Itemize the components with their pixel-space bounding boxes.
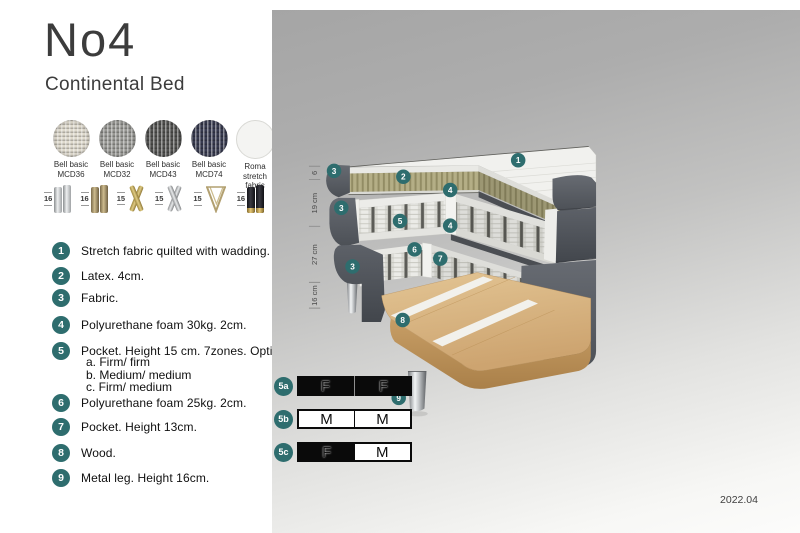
leg-height-measure: 16	[237, 190, 245, 208]
fabric-swatch-label: Bell basic MCD32	[100, 160, 134, 179]
fabric-name: Bell basic	[192, 160, 226, 170]
firmness-option-5a: 5a F F	[274, 376, 412, 396]
leg-bar	[91, 187, 99, 213]
leg-option-cross-silver: 15	[155, 185, 184, 212]
product-title: No4	[44, 12, 136, 67]
feature-number-badge: 9	[52, 469, 70, 487]
callout-3-middle: 3	[334, 201, 349, 216]
measure-tick	[117, 192, 125, 193]
fabric-swatch-label: Bell basic MCD74	[192, 160, 226, 179]
callout-label: 8	[400, 316, 405, 325]
leg-height-value: 15	[155, 195, 163, 203]
callout-5: 5	[393, 214, 408, 229]
callout-2: 2	[396, 170, 411, 185]
fabric-name: Bell basic	[54, 160, 88, 170]
fabric-code: MCD32	[100, 170, 134, 180]
cylinder-black-gold-leg-icon	[247, 185, 264, 213]
fabric-swatch-row: Bell basic MCD36 Bell basic MCD32 Bell b…	[50, 120, 276, 191]
firmness-cell: M	[354, 411, 410, 427]
fabric-swatch-icon	[191, 120, 228, 157]
firmness-badge: 5a	[274, 377, 293, 396]
feature-number-badge: 8	[52, 444, 70, 462]
feature-item-7: 7 Pocket. Height 13cm.	[52, 418, 197, 436]
diagram-panel: 6 19 cm 27 cm 16 cm	[272, 10, 800, 533]
callout-4-upper: 4	[443, 183, 458, 198]
measure-tick	[81, 205, 89, 206]
measure-tick	[44, 192, 52, 193]
callout-label: 1	[516, 156, 521, 165]
page: No4 Continental Bed Bell basic MCD36 Bel…	[0, 0, 800, 533]
feature-text: Latex. 4cm.	[81, 267, 144, 283]
leg-options-row: 16 16 15	[44, 185, 264, 213]
dimension-label: 16 cm	[310, 285, 319, 306]
hairpin-leg-icon	[204, 185, 228, 213]
feature-number-badge: 2	[52, 267, 70, 285]
fabric-swatch: Bell basic MCD43	[142, 120, 184, 191]
leg-option-cylinder-bronze: 16	[80, 185, 107, 213]
measure-tick	[81, 192, 89, 193]
measure-tick	[237, 205, 245, 206]
firmness-value: F	[322, 445, 331, 460]
leg-option-cross-gold: 15	[117, 185, 146, 212]
leg-bar	[100, 185, 108, 213]
firmness-option-5c: 5c F M	[274, 442, 412, 462]
callout-label: 2	[401, 173, 406, 182]
dimension-label: 27 cm	[310, 244, 319, 265]
measure-tick	[194, 192, 202, 193]
firmness-badge: 5b	[274, 410, 293, 429]
firmness-box: F M	[297, 442, 412, 462]
callout-label: 6	[412, 245, 417, 254]
leg-height-measure: 16	[44, 190, 52, 208]
fabric-swatch-label: Bell basic MCD43	[146, 160, 180, 179]
firmness-value: M	[320, 412, 333, 427]
callout-label: 4	[448, 186, 453, 195]
measure-tick	[155, 192, 163, 193]
callout-label: 3	[332, 167, 337, 176]
cross-gold-leg-icon	[127, 185, 146, 212]
feature-item-1: 1 Stretch fabric quilted with wadding.	[52, 242, 270, 260]
feature-text: Stretch fabric quilted with wadding.	[81, 242, 270, 258]
firmness-box: F F	[297, 376, 412, 396]
fabric-swatch-icon	[53, 120, 90, 157]
feature-item-8: 8 Wood.	[52, 444, 116, 462]
leg-bar	[54, 187, 62, 213]
fabric-swatch: Bell basic MCD32	[96, 120, 138, 191]
measure-tick	[155, 204, 163, 205]
leg-option-cylinder-silver: 16	[44, 185, 71, 213]
feature-number-badge: 7	[52, 418, 70, 436]
feature-item-4: 4 Polyurethane foam 30kg. 2cm.	[52, 316, 247, 334]
feature-item-9: 9 Metal leg. Height 16cm.	[52, 469, 209, 487]
leg-height-value: 16	[237, 195, 245, 203]
fabric-code: MCD74	[192, 170, 226, 180]
version-stamp: 2022.04	[690, 494, 758, 506]
fabric-swatch-icon	[236, 120, 275, 159]
firmness-value: F	[379, 379, 388, 394]
fabric-name: Bell basic	[146, 160, 180, 170]
measure-tick	[194, 205, 202, 206]
leg-height-value: 15	[193, 195, 201, 203]
dimension-label: 19 cm	[310, 193, 319, 214]
feature-text: Polyurethane foam 30kg. 2cm.	[81, 316, 247, 332]
measure-tick	[44, 205, 52, 206]
measure-tick	[237, 192, 245, 193]
leg-bar	[247, 187, 255, 213]
leg-bar	[256, 185, 264, 213]
callout-8: 8	[395, 313, 410, 328]
feature-text: Polyurethane foam 25kg. 2cm.	[81, 394, 247, 410]
callout-label: 4	[448, 222, 453, 231]
leg-height-measure: 15	[193, 190, 201, 208]
fabric-swatch-icon	[99, 120, 136, 157]
dimension-label: 6	[310, 171, 319, 175]
fabric-name: Bell basic	[100, 160, 134, 170]
feature-item-3: 3 Fabric.	[52, 289, 118, 307]
feature-number-badge: 1	[52, 242, 70, 260]
fabric-code: MCD36	[54, 170, 88, 180]
feature-text: Metal leg. Height 16cm.	[81, 469, 209, 485]
callout-7: 7	[433, 251, 448, 266]
callout-label: 5	[398, 217, 403, 226]
fabric-swatch: Roma stretch fabric	[234, 120, 276, 191]
feature-number-badge: 4	[52, 316, 70, 334]
leg-height-measure: 15	[155, 190, 163, 208]
feature-5-option-c: c. Firm/ medium	[86, 380, 172, 394]
measure-tick	[117, 204, 125, 205]
firmness-badge: 5c	[274, 443, 293, 462]
leg-bar	[63, 185, 71, 213]
latex-layer-left	[349, 172, 479, 192]
firmness-cell: F	[299, 444, 355, 460]
callout-label: 7	[438, 255, 443, 264]
cylinder-silver-leg-icon	[54, 185, 71, 213]
callout-1: 1	[511, 153, 526, 168]
feature-number-badge: 3	[52, 289, 70, 307]
dimension-ruler: 6 19 cm 27 cm 16 cm	[309, 166, 320, 308]
feature-number-badge: 6	[52, 394, 70, 412]
callout-3-bottom: 3	[345, 259, 360, 274]
leg-option-hairpin: 15	[193, 185, 227, 213]
fabric-swatch-icon	[145, 120, 182, 157]
firmness-box: M M	[297, 409, 412, 429]
feature-text: Pocket. Height 13cm.	[81, 418, 197, 434]
feature-number-badge: 5	[52, 342, 70, 360]
cross-silver-leg-icon	[165, 185, 184, 212]
cylinder-bronze-leg-icon	[91, 185, 108, 213]
firmness-value: M	[376, 445, 389, 460]
callout-label: 3	[350, 263, 355, 272]
firmness-value: M	[376, 412, 389, 427]
leg-option-cylinder-black-gold: 16	[237, 185, 264, 213]
feature-text: Fabric.	[81, 289, 118, 305]
fabric-code: MCD43	[146, 170, 180, 180]
feature-item-2: 2 Latex. 4cm.	[52, 267, 144, 285]
firmness-cell: F	[297, 376, 354, 396]
firmness-cell: F	[354, 376, 412, 396]
firmness-option-5b: 5b M M	[274, 409, 412, 429]
product-subtitle: Continental Bed	[45, 74, 185, 96]
leg-height-measure: 16	[80, 190, 88, 208]
fabric-swatch: Bell basic MCD74	[188, 120, 230, 191]
firmness-value: F	[321, 379, 330, 394]
firmness-cell: M	[299, 411, 354, 427]
firmness-cell: M	[355, 444, 411, 460]
leg-height-value: 16	[80, 195, 88, 203]
leg-height-measure: 15	[117, 190, 125, 208]
fabric-name: Roma	[234, 162, 276, 172]
fabric-swatch-label: Bell basic MCD36	[54, 160, 88, 179]
callout-3-top: 3	[327, 164, 342, 179]
leg-height-value: 15	[117, 195, 125, 203]
callout-4-lower: 4	[443, 218, 458, 233]
feature-item-6: 6 Polyurethane foam 25kg. 2cm.	[52, 394, 247, 412]
leg-height-value: 16	[44, 195, 52, 203]
feature-text: Wood.	[81, 444, 116, 460]
callout-label: 3	[339, 204, 344, 213]
fabric-swatch: Bell basic MCD36	[50, 120, 92, 191]
callout-6: 6	[407, 242, 422, 257]
